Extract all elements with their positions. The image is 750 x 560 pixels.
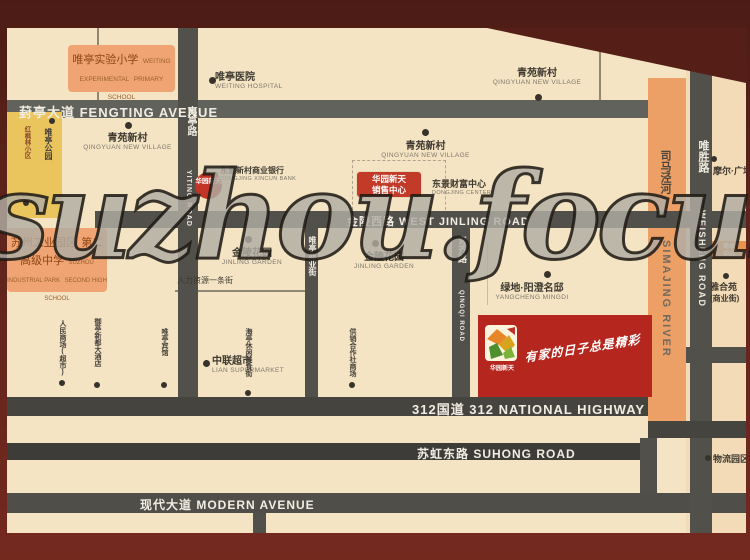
poi-dot [245,390,251,396]
poi-dot [203,360,210,367]
qingyuan-en: QINGYUAN NEW VILLAGE [487,79,587,86]
project-slogan: 有家的日子总是精彩 [524,329,647,365]
project-logo-name: 华园新天 [486,363,518,372]
poi-dot [161,382,167,388]
supermarket-en: LIAN SUPERMARKET [212,367,302,374]
suhong-road-label: 苏虹东路 SUHONG ROAD [417,445,576,462]
qingyuan-cn: 青苑新村 [75,129,180,144]
watermark-text: suzhou.focus.c [0,146,750,287]
south-vertical-road [640,438,657,493]
logistics-cn: 物流园区 [713,452,746,465]
qingyuan-cn: 青苑新村 [487,64,587,79]
modern-avenue-stub-road [253,513,266,533]
vpoi-weiting-hotel: 唯亭宾馆 [159,328,169,356]
vpoi-coop-market: 供销合作社商场 [347,328,357,377]
poi-dot [125,122,132,129]
map-photo: 司马泾河 SIMAJING RIVER 葑亭大道 FENGTING AVENUE… [0,0,750,560]
poi-dot [59,380,65,386]
poi-dot [422,129,429,136]
supermarket-label: 中联超市 LIAN SUPERMARKET [212,352,302,374]
modern-avenue-road [7,493,746,513]
qingqi-road-label-en: QINGQI ROAD [458,290,464,342]
yangcheng-en: YANGCHENG MINGDI [472,294,592,301]
yiting-road-label-cn: 夷亭路 [183,106,198,136]
yaheyuan-cn2: (商业街) [710,293,746,304]
project-banner: 华园新天 有家的日子总是精彩 [478,315,652,397]
qingyuan-label-3: 青苑新村 QINGYUAN NEW VILLAGE [487,64,587,86]
g312-road-east [648,421,746,438]
poi-dot [349,382,355,388]
poi-dot [705,455,711,461]
project-logo-icon [485,325,517,361]
hospital-label: 唯亭医院 WEITING HOSPITAL [215,68,299,90]
primary-school-box: 唯亭实验小学 WEITING EXPERIMENTAL PRIMARY SCHO… [68,45,175,92]
poi-dot [94,382,100,388]
poi-dot [535,94,542,101]
supermarket-cn: 中联超市 [212,352,302,367]
modern-avenue-label: 现代大道 MODERN AVENUE [140,496,315,513]
logistics-label: 物流园区 [713,452,746,465]
hospital-cn: 唯亭医院 [215,68,299,83]
primary-school-name: 唯亭实验小学 [72,54,138,66]
hospital-en: WEITING HOSPITAL [215,83,299,90]
vpoi-yuting-hotel: 御亭新都大酒店 [92,318,102,367]
vpoi-food-street: 海亭休闲美食街 [243,328,253,377]
g312-label: 312国道 312 NATIONAL HIGHWAY [412,399,645,418]
vpoi-renmin: 人民商场(超市) [57,320,67,376]
